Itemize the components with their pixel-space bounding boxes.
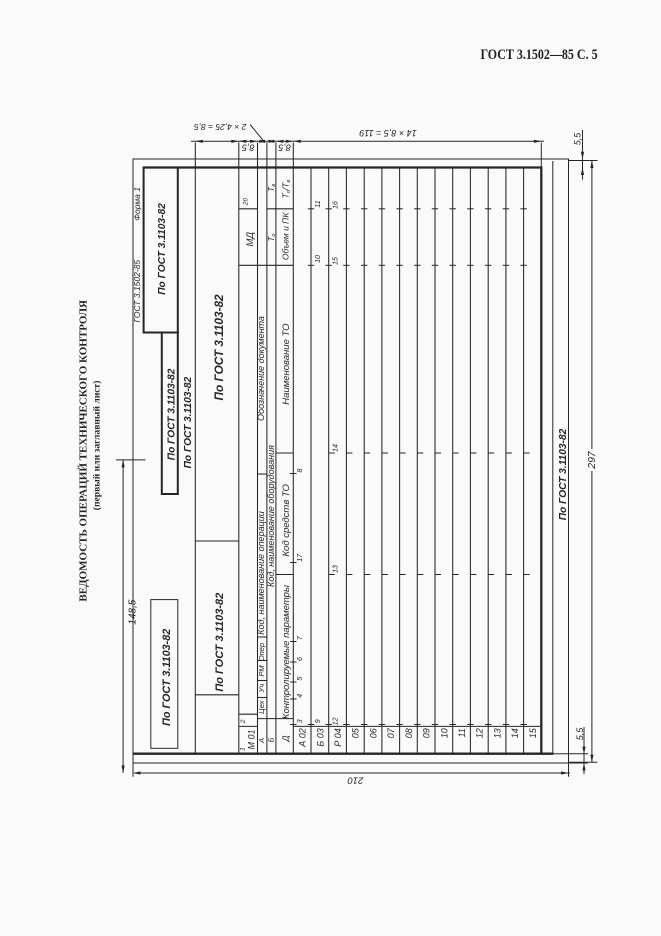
svg-text:По ГОСТ 3.1103-82: По ГОСТ 3.1103-82	[213, 593, 225, 692]
svg-text:15: 15	[332, 257, 339, 265]
svg-text:МД: МД	[244, 232, 255, 247]
svg-text:По ГОСТ 3.1103-82: По ГОСТ 3.1103-82	[183, 377, 194, 469]
svg-text:Обозначение документа: Обозначение документа	[255, 316, 265, 421]
svg-text:Цех: Цех	[256, 701, 265, 714]
svg-text:5,5: 5,5	[575, 727, 585, 741]
svg-text:148,5: 148,5	[127, 600, 138, 625]
svg-text:ГОСТ 3.1502-85: ГОСТ 3.1502-85	[131, 260, 141, 323]
svg-text:5: 5	[297, 677, 304, 681]
svg-text:14: 14	[510, 728, 520, 738]
svg-text:210: 210	[346, 775, 364, 786]
svg-text:Код, наименование операции: Код, наименование операции	[255, 512, 265, 635]
svg-text:12: 12	[474, 728, 484, 738]
svg-text:10: 10	[314, 255, 321, 263]
svg-text:М 01: М 01	[246, 730, 256, 750]
svg-text:14: 14	[332, 444, 339, 452]
svg-text:То/Тв: То/Тв	[280, 180, 291, 199]
svg-text:1: 1	[239, 747, 246, 751]
svg-text:ВЕДОМОСТЬ ОПЕРАЦИЙ ТЕХНИЧЕСКОГ: ВЕДОМОСТЬ ОПЕРАЦИЙ ТЕХНИЧЕСКОГО КОНТРОЛЯ	[77, 300, 89, 602]
svg-text:По ГОСТ 3.1103-82: По ГОСТ 3.1103-82	[160, 629, 172, 726]
svg-text:11: 11	[457, 728, 467, 737]
svg-text:Объем и ПК: Объем и ПК	[280, 212, 290, 260]
svg-text:6: 6	[297, 657, 304, 661]
svg-text:Контролируемые параметры: Контролируемые параметры	[280, 585, 291, 719]
svg-text:9: 9	[314, 720, 321, 724]
svg-text:Д: Д	[280, 736, 290, 743]
svg-text:8,5: 8,5	[277, 143, 291, 153]
svg-text:По ГОСТ 3.1103-82: По ГОСТ 3.1103-82	[211, 294, 225, 400]
svg-text:Наименование ТО: Наименование ТО	[280, 323, 291, 405]
svg-text:09: 09	[421, 728, 431, 738]
svg-text:Тв: Тв	[266, 184, 276, 192]
svg-text:297: 297	[586, 450, 598, 470]
svg-text:07: 07	[386, 728, 396, 739]
svg-text:17: 17	[297, 553, 304, 562]
svg-text:Р 04: Р 04	[333, 728, 343, 747]
svg-text:20: 20	[242, 198, 249, 207]
svg-text:11: 11	[314, 201, 321, 208]
svg-text:16: 16	[332, 201, 339, 209]
svg-text:То: То	[266, 234, 276, 242]
svg-text:13: 13	[492, 728, 502, 738]
svg-text:2 × 4,25 = 8,5: 2 × 4,25 = 8,5	[193, 122, 247, 132]
svg-text:14 × 8,5 = 119: 14 × 8,5 = 119	[359, 128, 416, 138]
svg-text:3: 3	[297, 720, 304, 724]
svg-text:12: 12	[332, 718, 339, 726]
svg-text:Уч: Уч	[256, 684, 265, 694]
svg-text:13: 13	[332, 565, 339, 573]
svg-text:10: 10	[439, 728, 449, 738]
svg-text:4: 4	[297, 694, 304, 698]
svg-text:По ГОСТ 3.1103-82: По ГОСТ 3.1103-82	[166, 369, 177, 461]
svg-text:По ГОСТ 3.1103-82: По ГОСТ 3.1103-82	[558, 429, 569, 521]
svg-text:РМ: РМ	[256, 665, 265, 677]
svg-text:Б 03: Б 03	[315, 728, 325, 746]
svg-text:А 02: А 02	[297, 728, 307, 748]
svg-text:Опер: Опер	[256, 643, 265, 661]
svg-text:7: 7	[297, 635, 304, 640]
svg-text:8: 8	[297, 469, 304, 473]
svg-text:Форма 1: Форма 1	[131, 187, 141, 221]
svg-text:06: 06	[368, 728, 378, 738]
svg-text:15: 15	[527, 728, 537, 739]
svg-text:8,5: 8,5	[240, 143, 254, 153]
svg-text:Б: Б	[266, 738, 275, 743]
svg-text:08: 08	[403, 728, 413, 738]
svg-text:Код, наименование оборудовани: Код, наименование оборудования	[265, 445, 275, 587]
svg-text:05: 05	[350, 728, 360, 739]
svg-text:5,5: 5,5	[572, 132, 582, 146]
svg-text:Код средств ТО: Код средств ТО	[280, 484, 291, 557]
svg-text:2: 2	[240, 719, 247, 724]
svg-text:(первый или заглавный лист): (первый или заглавный лист)	[91, 381, 102, 511]
svg-text:По ГОСТ 3.1103-82: По ГОСТ 3.1103-82	[157, 203, 168, 295]
